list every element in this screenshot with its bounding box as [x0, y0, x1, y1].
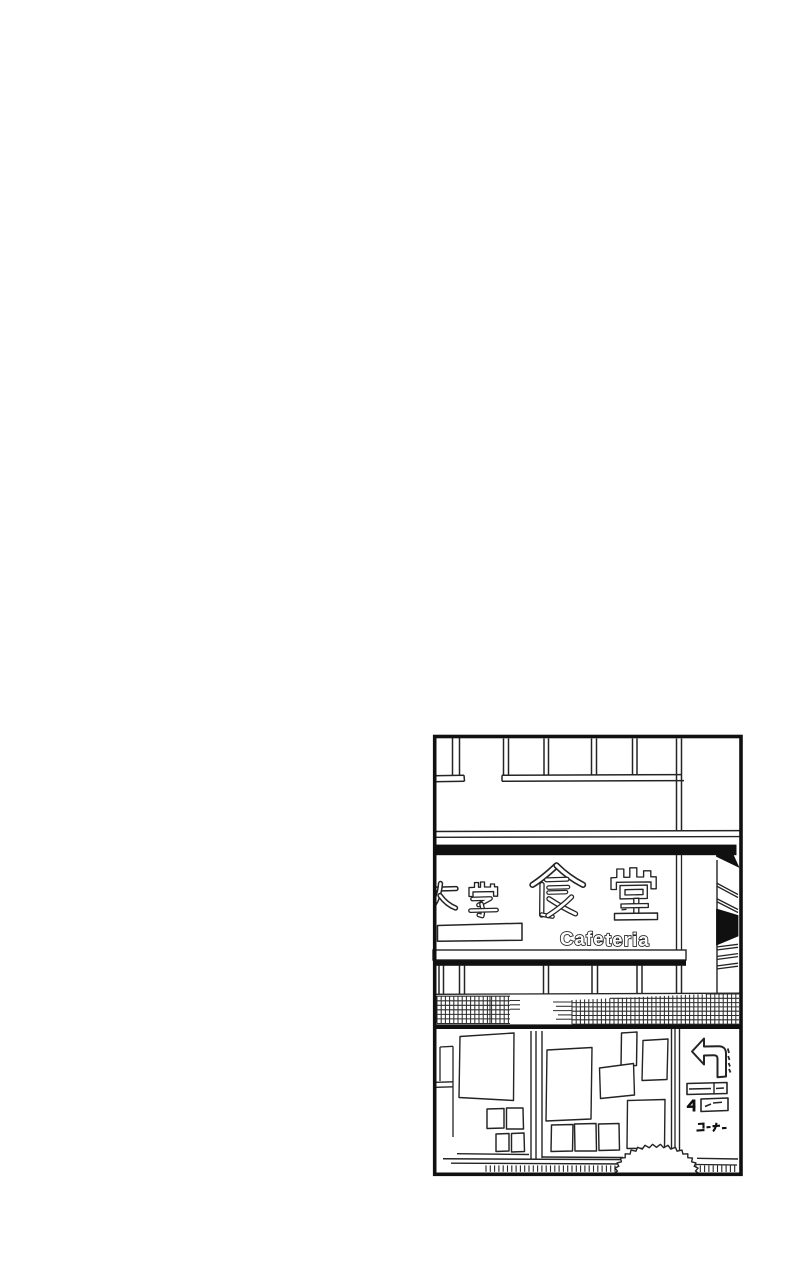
svg-text:Cafe: Cafe [560, 928, 605, 949]
svg-text:teria: teria [605, 929, 650, 950]
